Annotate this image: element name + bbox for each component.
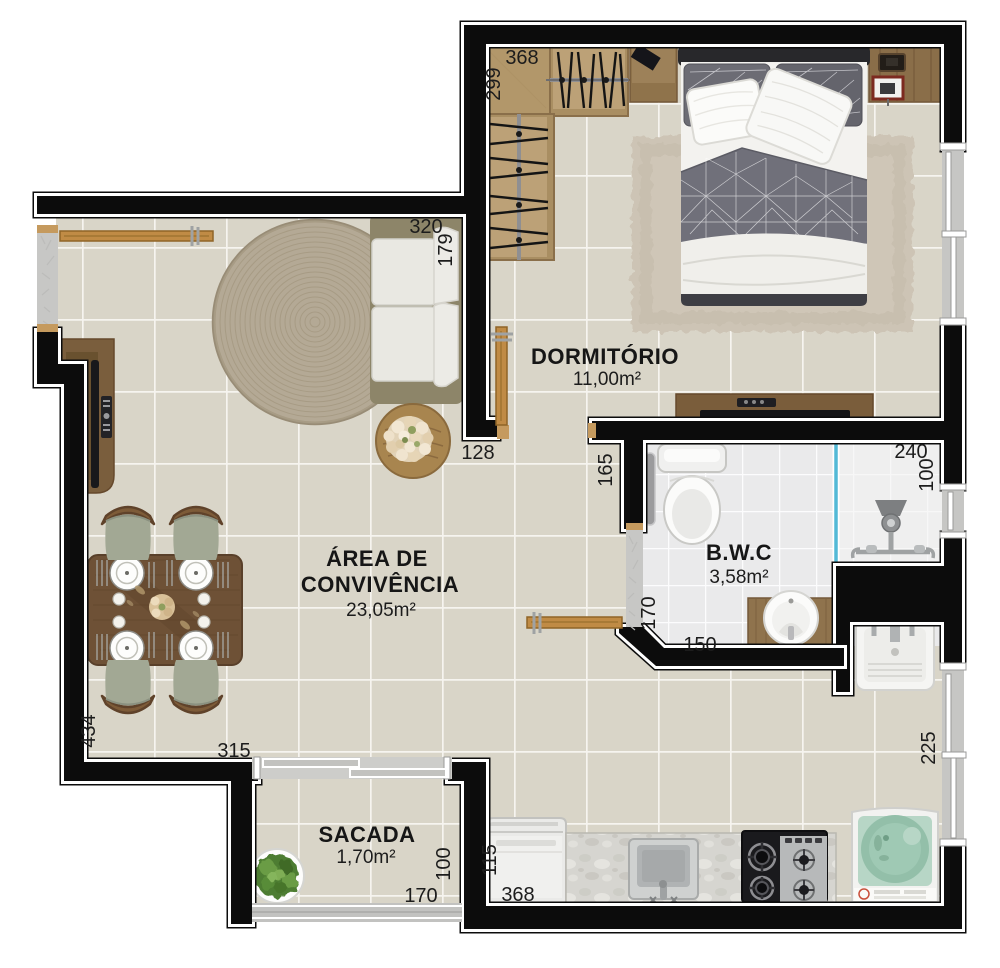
svg-text:170: 170 <box>404 885 437 907</box>
svg-text:179: 179 <box>435 233 457 266</box>
svg-text:100: 100 <box>433 847 455 880</box>
svg-text:434: 434 <box>78 714 100 747</box>
svg-text:CONVIVÊNCIA: CONVIVÊNCIA <box>301 572 459 597</box>
svg-text:150: 150 <box>683 634 716 656</box>
svg-text:1,70m²: 1,70m² <box>336 847 395 868</box>
svg-text:315: 315 <box>217 740 250 762</box>
svg-text:SACADA: SACADA <box>318 822 415 847</box>
svg-text:3,58m²: 3,58m² <box>709 567 768 588</box>
svg-text:368: 368 <box>505 47 538 69</box>
svg-text:368: 368 <box>501 884 534 906</box>
svg-text:115: 115 <box>479 844 501 876</box>
svg-text:128: 128 <box>461 442 494 464</box>
svg-text:ÁREA DE: ÁREA DE <box>326 546 428 571</box>
svg-text:225: 225 <box>918 731 940 764</box>
svg-text:299: 299 <box>483 67 505 100</box>
svg-text:165: 165 <box>595 453 617 486</box>
svg-text:170: 170 <box>638 596 660 629</box>
svg-text:B.W.C: B.W.C <box>706 540 772 565</box>
svg-text:23,05m²: 23,05m² <box>346 600 416 621</box>
svg-text:11,00m²: 11,00m² <box>573 369 641 390</box>
svg-text:DORMITÓRIO: DORMITÓRIO <box>531 344 679 369</box>
svg-text:100: 100 <box>916 458 938 491</box>
